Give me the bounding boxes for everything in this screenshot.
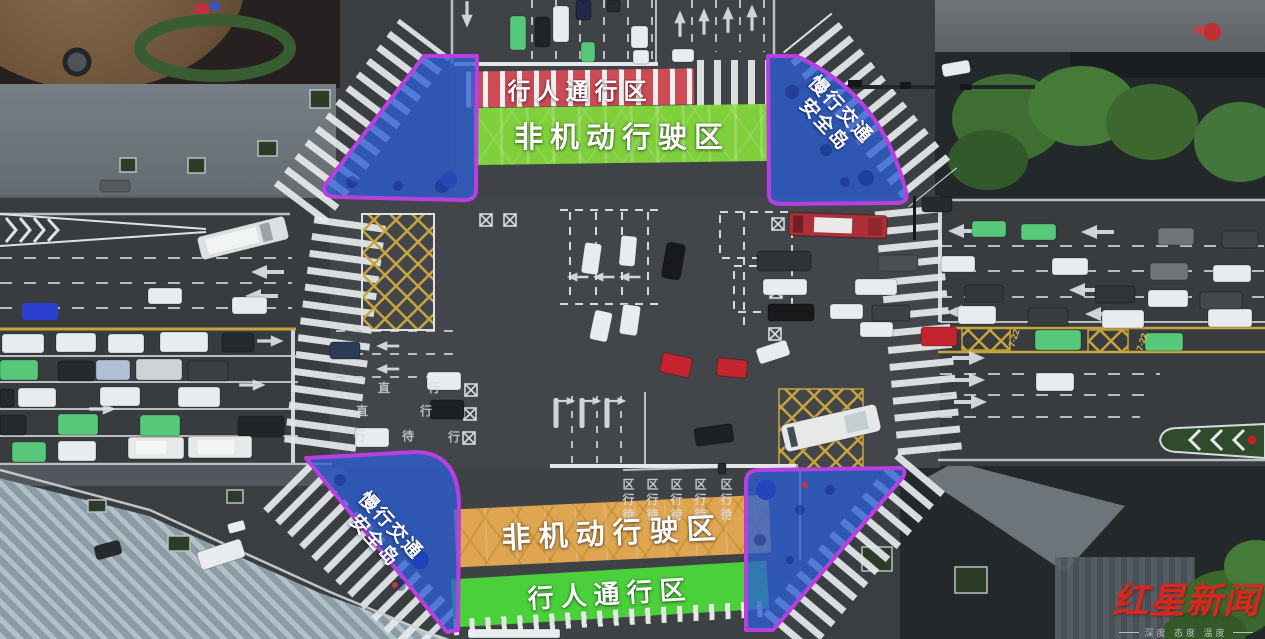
aerial-intersection-photo: 区行待 区行待 区行待 区行待 区行待 直 行 直 行 行 待 行 7-22 7… — [0, 0, 1265, 639]
watermark-brand: 红星新闻 — [1108, 572, 1264, 624]
north-pedestrian-zone-label: 行人通行区 — [466, 72, 694, 105]
watermark-tagline: 深度 态度 温度 — [1108, 626, 1264, 639]
news-watermark: 红星新闻 深度 态度 温度 — [1108, 572, 1264, 639]
north-nonmotor-zone-label: 非机动行驶区 — [474, 110, 770, 160]
